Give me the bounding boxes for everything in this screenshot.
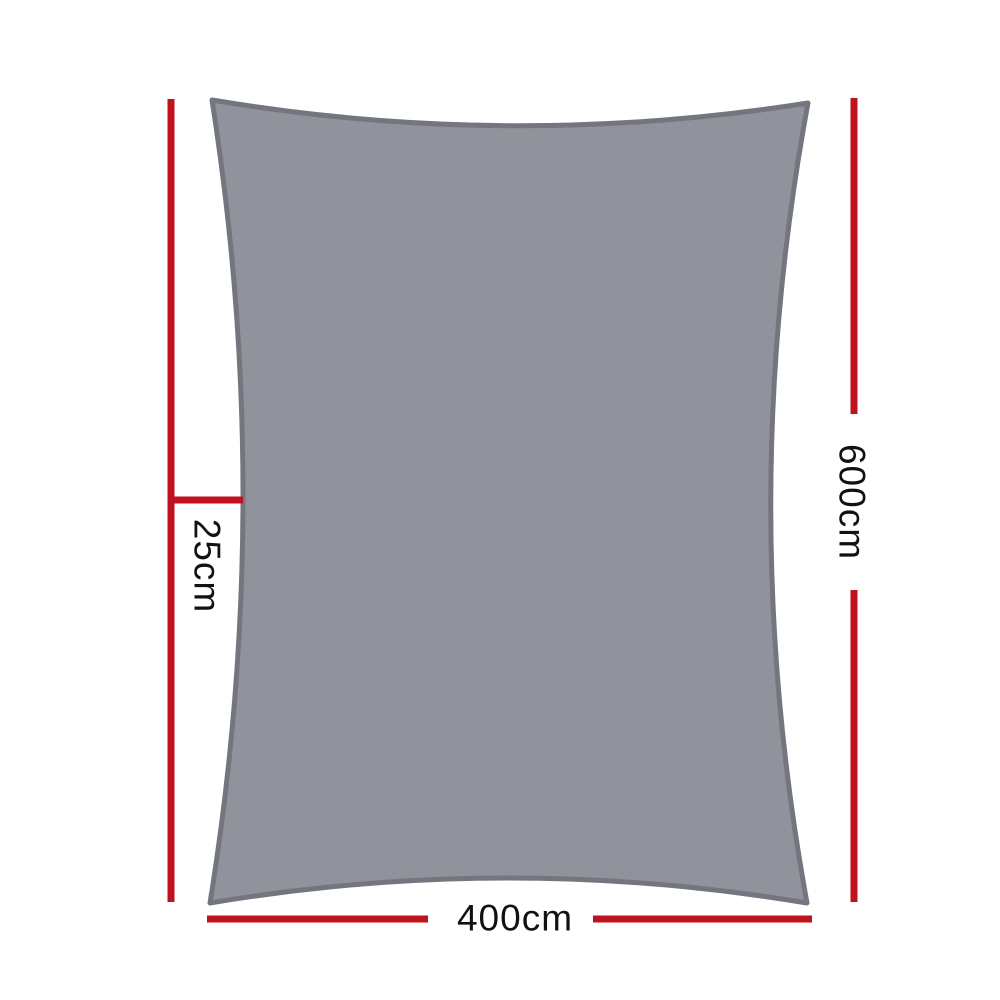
shade-sail-dimension-diagram: 25cm 600cm 400cm — [0, 0, 1000, 1000]
width-label: 400cm — [457, 900, 573, 937]
shade-sail-shape — [210, 100, 808, 903]
sag-depth-label: 25cm — [189, 519, 226, 613]
height-label: 600cm — [834, 444, 871, 560]
